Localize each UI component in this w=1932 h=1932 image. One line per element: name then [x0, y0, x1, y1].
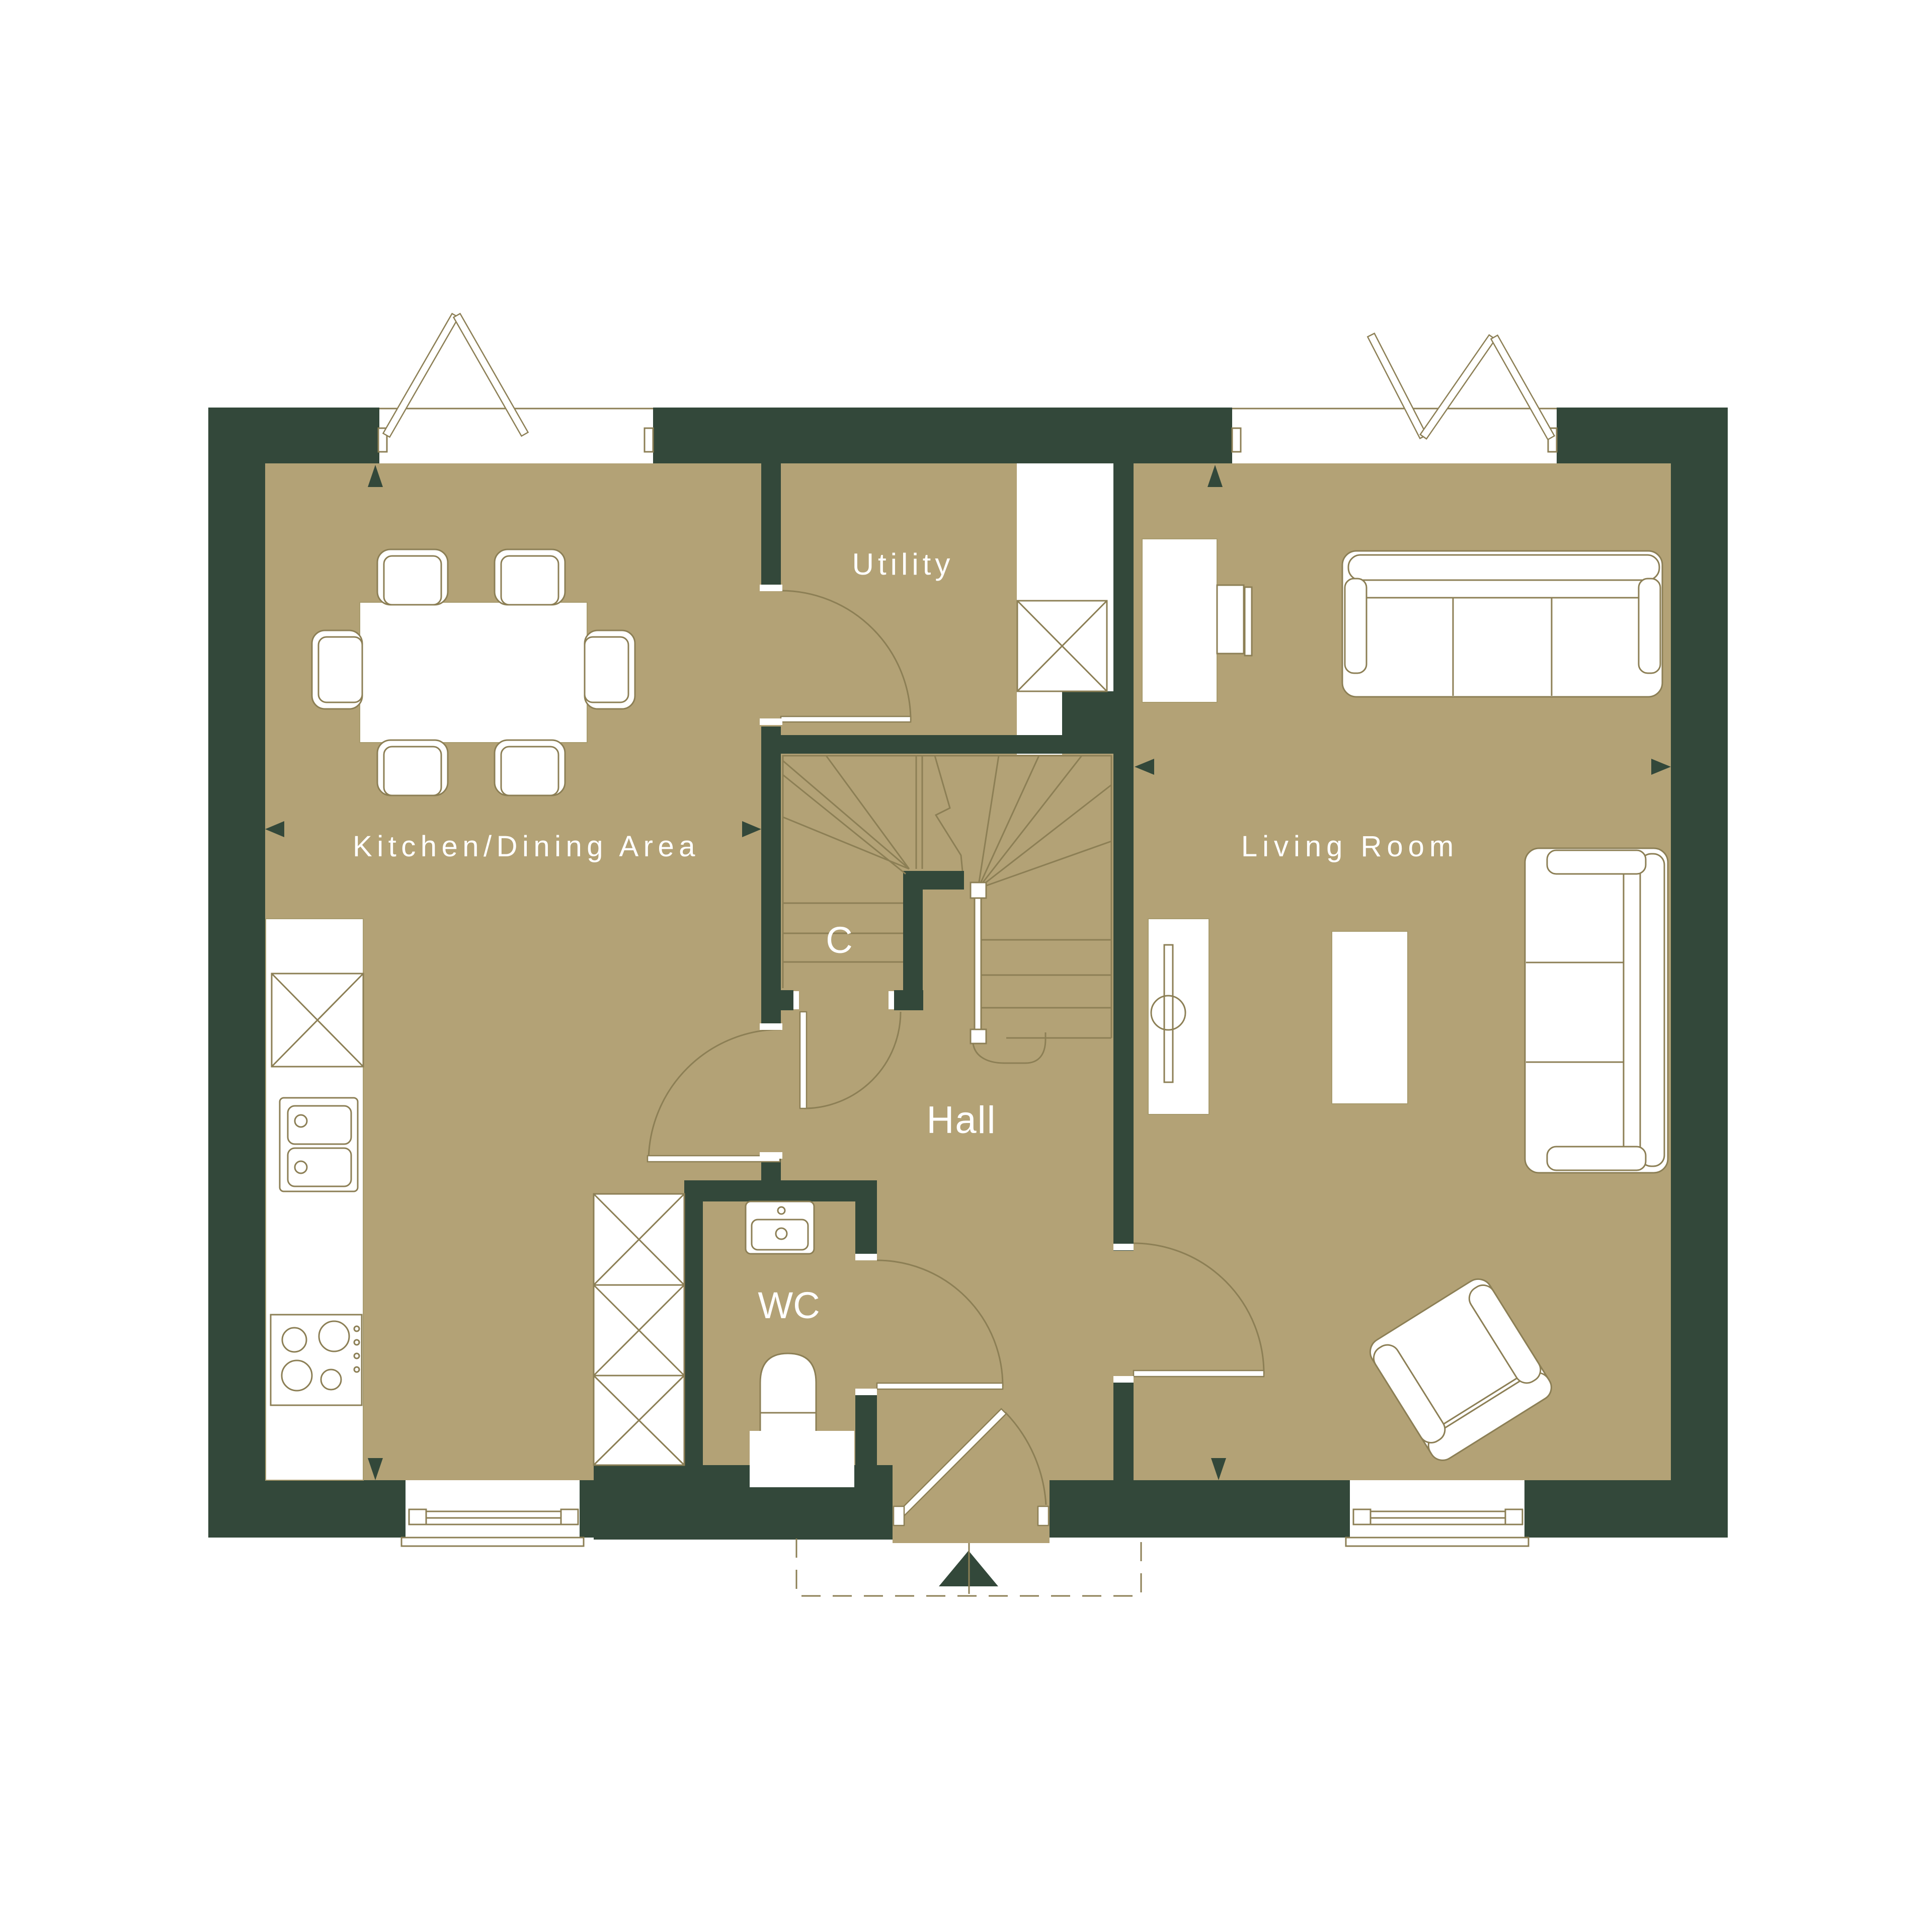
svg-text:WC: WC — [758, 1284, 820, 1326]
svg-text:Kitchen/Dining Area: Kitchen/Dining Area — [353, 830, 700, 863]
svg-text:Living Room: Living Room — [1241, 830, 1459, 863]
svg-text:Hall: Hall — [927, 1099, 997, 1142]
svg-text:C: C — [826, 919, 852, 961]
svg-text:Utility: Utility — [852, 547, 954, 581]
